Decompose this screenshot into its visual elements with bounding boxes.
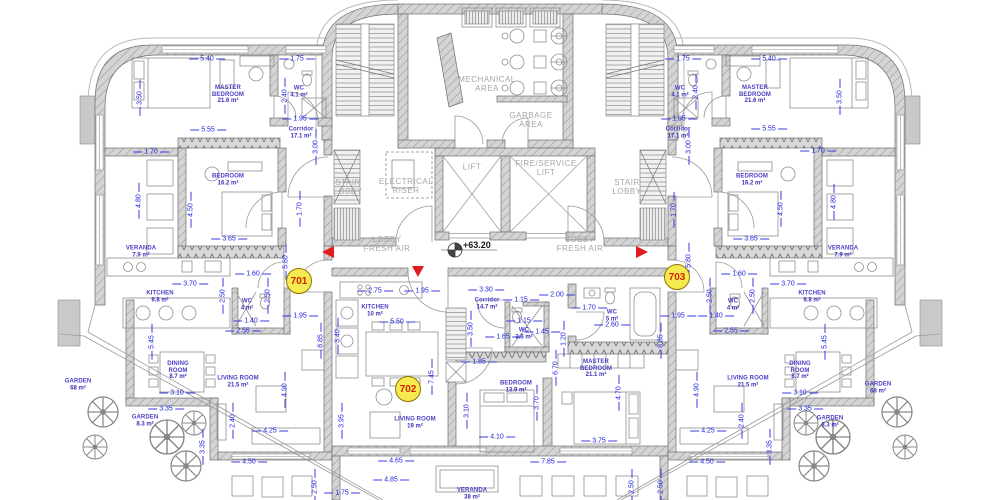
level-elevation-label: +63.20: [463, 240, 491, 250]
floor-plan-drawing: [0, 0, 1000, 500]
mechanical-equipment: [462, 8, 567, 96]
lift-shafts: [443, 156, 587, 238]
electrical-riser-closet: [386, 152, 432, 198]
arrow-down-icon: [412, 266, 424, 277]
facade-fins: [58, 96, 942, 346]
garden-trees: [83, 397, 917, 481]
floor-plan: 5.401.753.502.401.955.553.001.704.804.50…: [0, 0, 1000, 500]
furniture: [107, 56, 893, 497]
arrow-right-icon: [636, 246, 648, 258]
stairs: [334, 24, 666, 240]
